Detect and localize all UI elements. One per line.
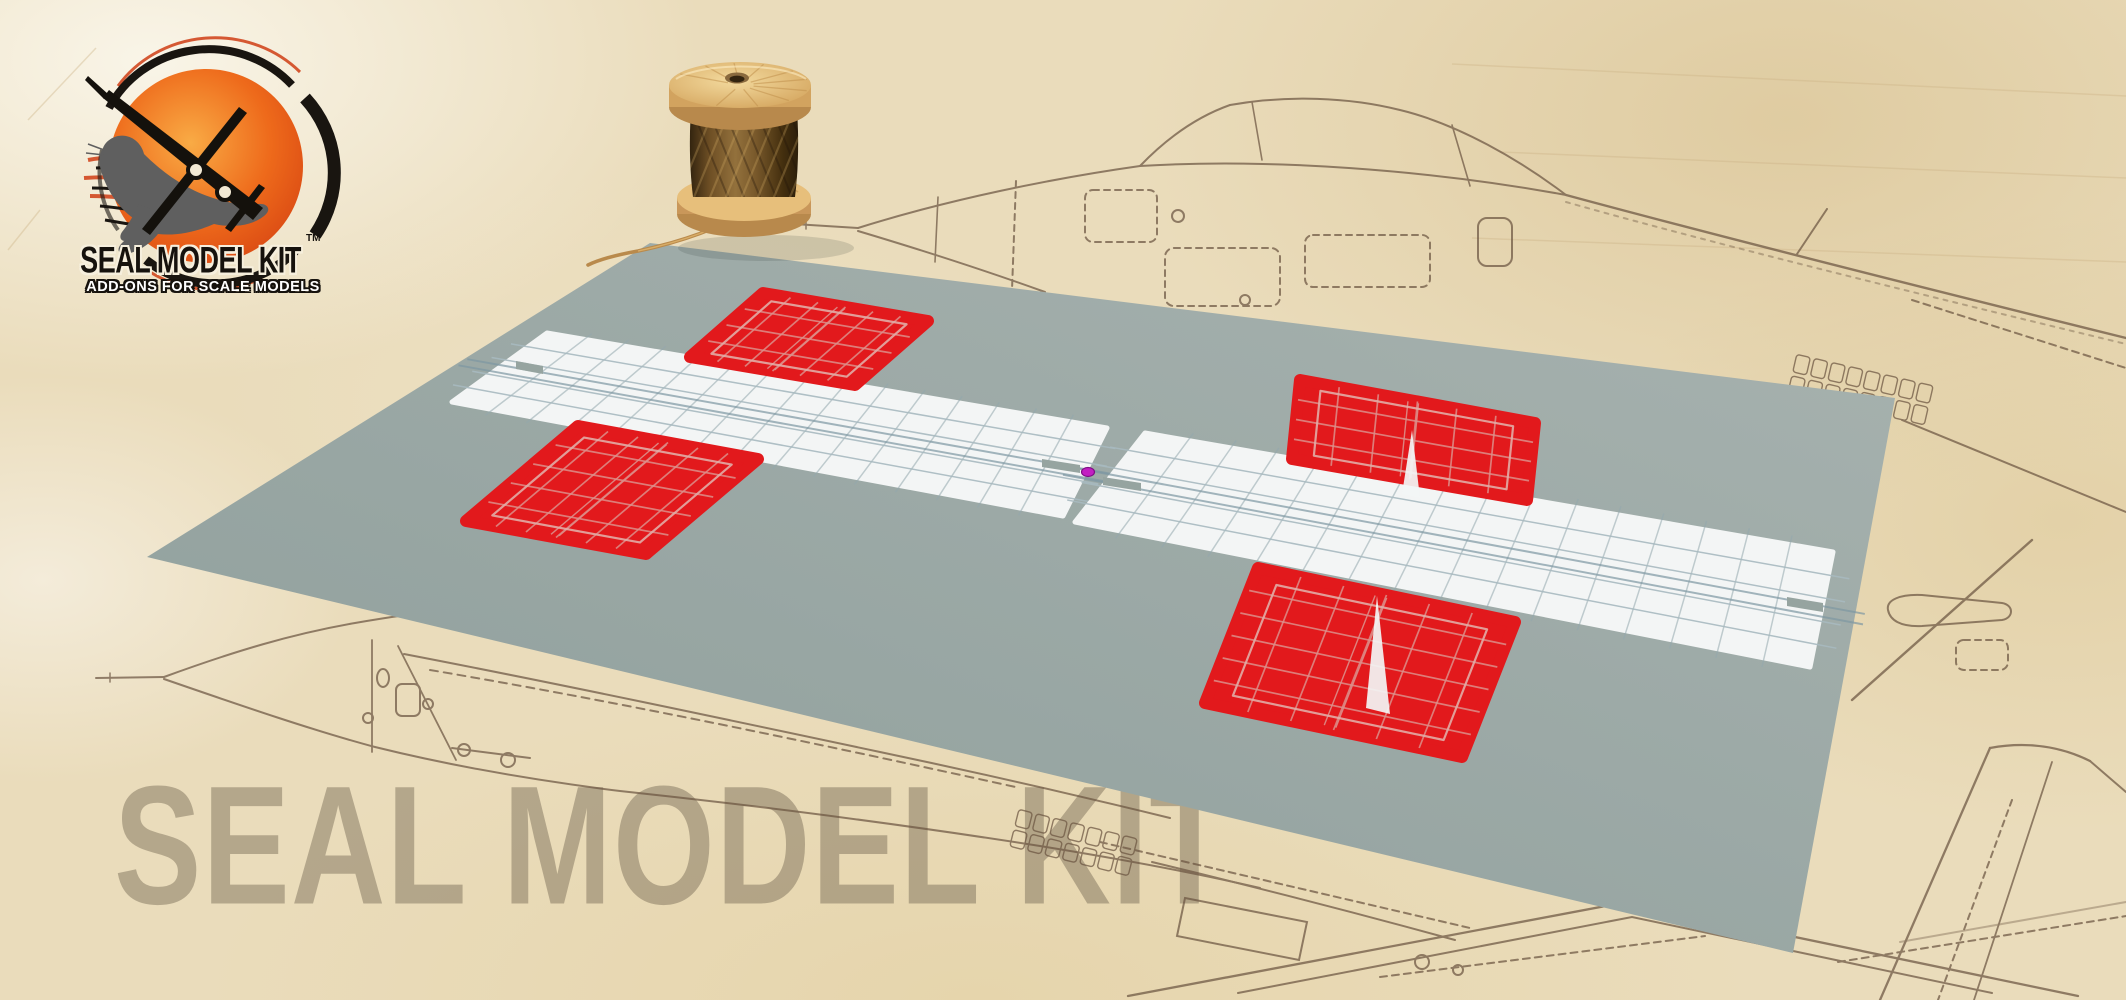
product-render: SEAL MODEL KIT <box>0 0 2126 1000</box>
logo-title: SEAL MODEL KIT <box>78 241 303 282</box>
spool-shadow <box>678 235 854 261</box>
thread-spool <box>588 62 858 265</box>
logo-tagline: ADD-ONS FOR SCALE MODELS <box>84 279 322 295</box>
origin-dot <box>1082 468 1095 477</box>
scene-canvas <box>0 0 2126 1000</box>
logo-trademark: TM <box>306 233 320 244</box>
